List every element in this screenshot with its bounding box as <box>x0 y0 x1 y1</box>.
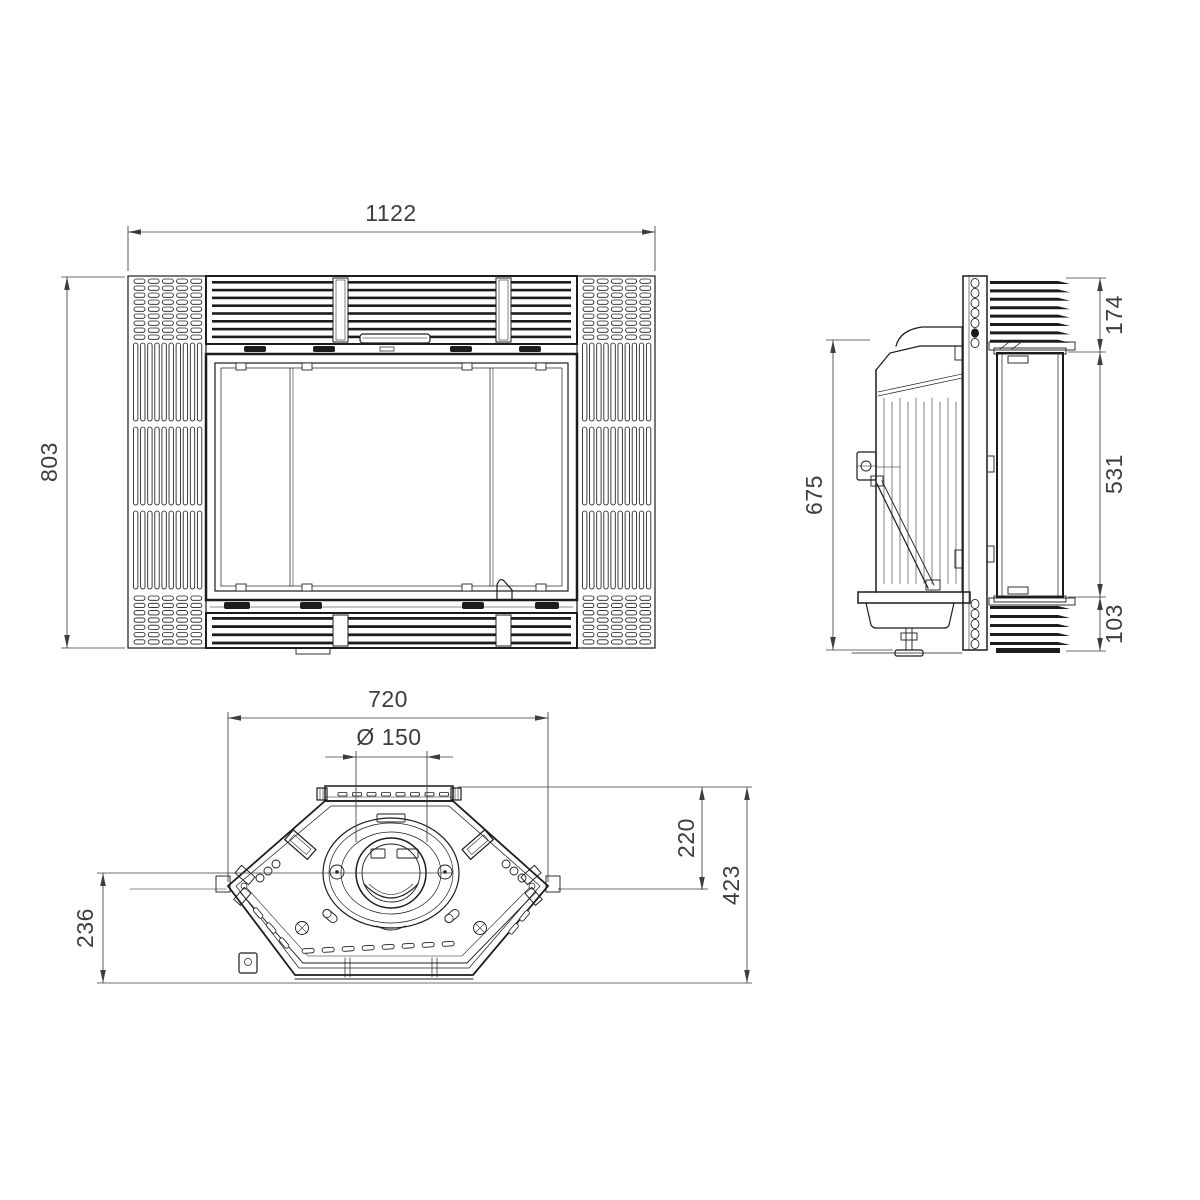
vent-slot <box>618 511 622 589</box>
vent-slot <box>148 427 152 505</box>
vent-slot <box>191 640 202 644</box>
vent-slot <box>191 611 202 615</box>
dimension-label: 531 <box>1101 454 1127 494</box>
dimension-label: 103 <box>1101 604 1127 644</box>
cap-dash <box>338 793 347 797</box>
vent-slot <box>611 335 622 339</box>
vent-slot <box>632 511 636 589</box>
dimension-front-width: 1122 <box>128 200 655 271</box>
vent-slot <box>134 625 145 629</box>
vent-slot <box>611 618 622 622</box>
vent-slot <box>590 427 594 505</box>
vent-slot <box>162 314 173 318</box>
vent-slot <box>177 335 188 339</box>
vent-slot <box>604 511 608 589</box>
vent-slot <box>141 511 145 589</box>
vent-slot <box>155 343 159 421</box>
vent-slot <box>197 343 201 421</box>
front-bottom-slats <box>212 617 571 644</box>
vent-slot <box>191 314 202 318</box>
vent-slot <box>169 343 173 421</box>
dimension-label: 423 <box>718 865 744 905</box>
vent-slot <box>197 427 201 505</box>
vent-slot <box>162 286 173 290</box>
vent-slot <box>626 611 637 615</box>
vent-slot <box>134 300 145 304</box>
vent-slot <box>640 618 651 622</box>
fin-blade <box>990 323 1070 326</box>
strip-slot <box>971 609 979 618</box>
side-bottom-fins <box>989 598 1075 653</box>
vent-slot <box>625 427 629 505</box>
vent-slot <box>583 343 587 421</box>
vent-slot <box>197 511 201 589</box>
vent-slot <box>625 343 629 421</box>
vent-slot <box>177 307 188 311</box>
vent-slot <box>597 335 608 339</box>
facet-dash <box>422 942 434 947</box>
vent-slot <box>597 321 608 325</box>
vent-slot <box>169 427 173 505</box>
vent-slot <box>177 633 188 637</box>
vent-slot <box>162 596 173 600</box>
vent-slot <box>148 625 159 629</box>
vent-slot <box>134 343 138 421</box>
fin-blade <box>990 281 1070 284</box>
vent-slot <box>162 321 173 325</box>
fin-blade <box>990 315 1070 318</box>
side-strip-ovals <box>971 278 979 648</box>
dimension-label: Ø 150 <box>356 724 421 750</box>
louver-slat <box>212 625 571 628</box>
vent-slot <box>134 307 145 311</box>
vent-slot <box>148 279 159 283</box>
vent-slot <box>177 611 188 615</box>
side-base-plate <box>858 592 970 603</box>
vent-slot <box>583 611 594 615</box>
vent-slot <box>597 618 608 622</box>
vent-slot <box>640 286 651 290</box>
vent-slot <box>646 427 650 505</box>
pl-ovals-bottom <box>134 596 202 644</box>
vent-slot <box>611 300 622 304</box>
vent-slot <box>640 314 651 318</box>
vent-slot <box>177 603 188 607</box>
strip-slot <box>971 308 979 317</box>
vent-slot <box>632 427 636 505</box>
vent-slot <box>148 293 159 297</box>
vent-slot <box>148 603 159 607</box>
vent-slot <box>134 321 145 325</box>
side-body <box>852 327 970 656</box>
side-bottom-fin-blades <box>990 606 1070 645</box>
fin-blade <box>990 624 1070 627</box>
front-top-slats <box>212 281 571 338</box>
vent-slot <box>191 286 202 290</box>
vent-slot <box>583 300 594 304</box>
vent-slot <box>597 603 608 607</box>
bottom-tab <box>239 953 257 973</box>
fin-blade <box>990 615 1070 618</box>
vent-slot <box>176 343 180 421</box>
vent-slot <box>626 286 637 290</box>
vent-slot <box>626 633 637 637</box>
vent-slot <box>177 618 188 622</box>
vent-slot <box>618 427 622 505</box>
drawing-canvas: 1122 803 675 <box>0 0 1200 1200</box>
vent-slot <box>191 307 202 311</box>
vent-slot <box>590 343 594 421</box>
fin-blade <box>990 298 1070 301</box>
vent-slot <box>134 286 145 290</box>
vent-slot <box>162 603 173 607</box>
side-view <box>852 276 1075 656</box>
cap-dash <box>440 793 449 797</box>
vent-slot <box>611 279 622 283</box>
vent-slot <box>611 633 622 637</box>
vent-slot <box>162 328 173 332</box>
vent-slot <box>611 427 615 505</box>
cap-dash <box>425 793 434 797</box>
vent-slot <box>640 611 651 615</box>
strip-slot <box>971 298 979 307</box>
vent-slot <box>134 640 145 644</box>
vent-slot <box>597 279 608 283</box>
vent-slot <box>177 328 188 332</box>
vent-slot <box>640 300 651 304</box>
vent-slot <box>583 328 594 332</box>
dimension-flue-diameter: Ø 150 <box>325 724 453 842</box>
front-bottom-grille <box>206 600 577 654</box>
louver-slat <box>212 320 571 323</box>
pr-ovals-bottom <box>583 596 651 644</box>
cap-dash <box>382 793 391 797</box>
louver-slat <box>212 328 571 331</box>
vent-slot <box>626 307 637 311</box>
vent-slot <box>639 343 643 421</box>
vent-slot <box>183 343 187 421</box>
vent-slot <box>177 314 188 318</box>
facet-dash <box>402 943 414 948</box>
vent-slot <box>148 300 159 304</box>
vent-slot <box>583 321 594 325</box>
vent-slot <box>611 286 622 290</box>
vent-slot <box>162 335 173 339</box>
strip-slot <box>971 278 979 287</box>
vent-slot <box>191 335 202 339</box>
vent-slot <box>176 511 180 589</box>
vent-slot <box>640 279 651 283</box>
vent-slot <box>583 596 594 600</box>
strip-slot <box>971 288 979 297</box>
fin-blade <box>990 331 1070 334</box>
vent-slot <box>625 511 629 589</box>
facet-dash <box>442 941 454 946</box>
vent-slot <box>134 293 145 297</box>
side-top-fins <box>989 281 1075 350</box>
vent-slot <box>611 511 615 589</box>
vent-slot <box>583 511 587 589</box>
vent-slot <box>626 328 637 332</box>
vent-slot <box>597 611 608 615</box>
vent-slot <box>646 511 650 589</box>
vent-slot <box>583 279 594 283</box>
front-door <box>206 354 577 600</box>
vent-slot <box>177 293 188 297</box>
louver-slat <box>212 281 571 284</box>
vent-slot <box>640 596 651 600</box>
vent-slot <box>626 293 637 297</box>
vent-slot <box>134 633 145 637</box>
vent-slot <box>597 343 601 421</box>
technical-drawing-sheet: 1122 803 675 <box>0 0 1200 1200</box>
vent-slot <box>148 611 159 615</box>
dimension-label: 675 <box>801 475 827 515</box>
vent-slot <box>148 511 152 589</box>
vent-slot <box>177 321 188 325</box>
strip-slot <box>971 328 979 337</box>
side-brace <box>877 484 928 588</box>
vent-slot <box>190 511 194 589</box>
dimension-front-height: 803 <box>36 277 125 648</box>
vent-slot <box>162 427 166 505</box>
vent-slot <box>583 286 594 290</box>
cap-dash <box>353 793 362 797</box>
vent-slot <box>134 335 145 339</box>
vent-slot <box>597 596 608 600</box>
vent-slot <box>177 286 188 290</box>
cap-dash <box>367 793 376 797</box>
plan-hexagon <box>130 801 708 979</box>
front-panel-left <box>128 276 206 648</box>
vent-slot <box>590 511 594 589</box>
vent-slot <box>597 307 608 311</box>
pl-ovals-top <box>134 279 202 339</box>
vent-slot <box>191 596 202 600</box>
pl-slots <box>134 343 202 589</box>
vent-slot <box>162 625 173 629</box>
cap-dash <box>396 793 405 797</box>
vent-slot <box>183 511 187 589</box>
vent-slot <box>583 307 594 311</box>
vent-slot <box>583 640 594 644</box>
dimension-plan-rear-to-center: 220 <box>458 787 752 890</box>
vent-slot <box>597 300 608 304</box>
shoulder-bracket-right <box>462 830 493 859</box>
vent-slot <box>626 640 637 644</box>
louver-slat <box>212 642 571 645</box>
front-top-grille <box>206 276 577 354</box>
cap-dash <box>411 793 420 797</box>
vent-slot <box>640 335 651 339</box>
keyhole-right <box>443 908 461 925</box>
vent-slot <box>162 343 166 421</box>
louver-slat <box>212 617 571 620</box>
vent-slot <box>597 427 601 505</box>
side-mounting-frame <box>955 276 994 650</box>
vent-slot <box>597 511 601 589</box>
vent-slot <box>148 328 159 332</box>
strip-slot <box>971 338 979 347</box>
vent-slot <box>640 633 651 637</box>
vent-slot <box>632 343 636 421</box>
keyhole-left <box>321 908 339 925</box>
plan-flue-collar <box>323 814 459 930</box>
vent-slot <box>597 640 608 644</box>
strip-slot <box>971 629 979 638</box>
vent-slot <box>190 427 194 505</box>
vent-slot <box>148 286 159 290</box>
vent-slot <box>148 314 159 318</box>
vent-slot <box>177 640 188 644</box>
shoulder-bracket-left <box>285 830 316 859</box>
louver-slat <box>212 289 571 292</box>
vent-slot <box>611 328 622 332</box>
dimension-label: 220 <box>673 818 699 858</box>
front-view <box>128 276 655 654</box>
vent-slot <box>583 314 594 318</box>
vent-slot <box>646 343 650 421</box>
vent-slot <box>626 279 637 283</box>
vent-slot <box>162 279 173 283</box>
fin-blade <box>990 606 1070 609</box>
vent-slot <box>191 633 202 637</box>
louver-slat <box>212 312 571 315</box>
louver-slat <box>212 633 571 636</box>
vent-slot <box>583 618 594 622</box>
dimension-label: 720 <box>368 686 408 712</box>
vent-slot <box>191 328 202 332</box>
plan-view <box>130 786 708 979</box>
vent-slot <box>611 640 622 644</box>
vent-slot <box>190 343 194 421</box>
vent-slot <box>148 343 152 421</box>
fin-blade <box>990 289 1070 292</box>
vent-slot <box>611 596 622 600</box>
facet-dash <box>519 910 530 922</box>
vent-slot <box>626 596 637 600</box>
vent-slot <box>597 625 608 629</box>
vent-slot <box>169 511 173 589</box>
vent-slot <box>191 603 202 607</box>
facet-dash <box>342 946 354 951</box>
vent-slot <box>640 603 651 607</box>
louver-slat <box>212 297 571 300</box>
vent-slot <box>597 328 608 332</box>
facet-dash <box>508 923 519 935</box>
vent-slot <box>162 633 173 637</box>
vent-slot <box>583 633 594 637</box>
side-door-edge <box>994 348 1066 602</box>
vent-slot <box>611 625 622 629</box>
vent-slot <box>583 603 594 607</box>
vent-slot <box>177 300 188 304</box>
vent-slot <box>611 343 615 421</box>
vent-slot <box>134 279 145 283</box>
vent-slot <box>134 328 145 332</box>
vent-slot <box>583 293 594 297</box>
vent-slot <box>162 640 173 644</box>
side-ash-pan <box>866 603 954 628</box>
strip-slot <box>971 619 979 628</box>
vent-slot <box>611 314 622 318</box>
strip-slot <box>971 599 979 608</box>
vent-slot <box>148 596 159 600</box>
vent-slot <box>611 603 622 607</box>
strip-slot <box>971 639 979 648</box>
fin-blade <box>990 642 1070 645</box>
vent-slot <box>611 321 622 325</box>
vent-slot <box>640 328 651 332</box>
vent-slot <box>162 307 173 311</box>
vent-slot <box>626 314 637 318</box>
vent-slot <box>191 625 202 629</box>
vent-slot <box>191 279 202 283</box>
vent-slot <box>162 293 173 297</box>
vent-slot <box>162 611 173 615</box>
vent-slot <box>134 427 138 505</box>
vent-slot <box>148 640 159 644</box>
vent-slot <box>626 618 637 622</box>
vent-slot <box>583 427 587 505</box>
side-foot <box>852 628 962 656</box>
plan-top-cap <box>317 786 461 801</box>
vent-slot <box>177 596 188 600</box>
side-top-fin-blades <box>990 281 1070 343</box>
vent-slot <box>177 279 188 283</box>
vent-slot <box>148 618 159 622</box>
vent-slot <box>626 335 637 339</box>
vent-slot <box>177 625 188 629</box>
vent-slot <box>162 300 173 304</box>
dimension-side-chain: 174 531 103 <box>1066 278 1127 651</box>
vent-slot <box>148 335 159 339</box>
dimension-label: 174 <box>1101 295 1127 335</box>
vent-slot <box>191 618 202 622</box>
pr-ovals-top <box>583 279 651 339</box>
vent-slot <box>626 321 637 325</box>
facet-dash <box>253 907 264 919</box>
facet-dash <box>322 947 334 952</box>
vent-slot <box>639 427 643 505</box>
vent-slot <box>604 343 608 421</box>
vent-slot <box>134 611 145 615</box>
vent-slot <box>176 427 180 505</box>
vent-slot <box>134 618 145 622</box>
facet-dash <box>382 944 394 949</box>
vent-slot <box>134 596 145 600</box>
vent-slot <box>155 511 159 589</box>
louver-slat <box>212 304 571 307</box>
vent-slot <box>597 314 608 318</box>
vent-slot <box>162 511 166 589</box>
fin-blade <box>990 633 1070 636</box>
pr-slots <box>583 343 651 589</box>
dimension-label: 236 <box>72 908 98 948</box>
door-latch <box>497 580 512 600</box>
vent-slot <box>597 286 608 290</box>
vent-slot <box>155 427 159 505</box>
dimension-label: 803 <box>36 442 62 482</box>
vent-slot <box>148 307 159 311</box>
vent-slot <box>191 293 202 297</box>
vent-slot <box>134 511 138 589</box>
vent-slot <box>626 300 637 304</box>
vent-slot <box>583 335 594 339</box>
corner-hardware-right <box>521 865 560 905</box>
vent-slot <box>141 427 145 505</box>
vent-slot <box>640 307 651 311</box>
